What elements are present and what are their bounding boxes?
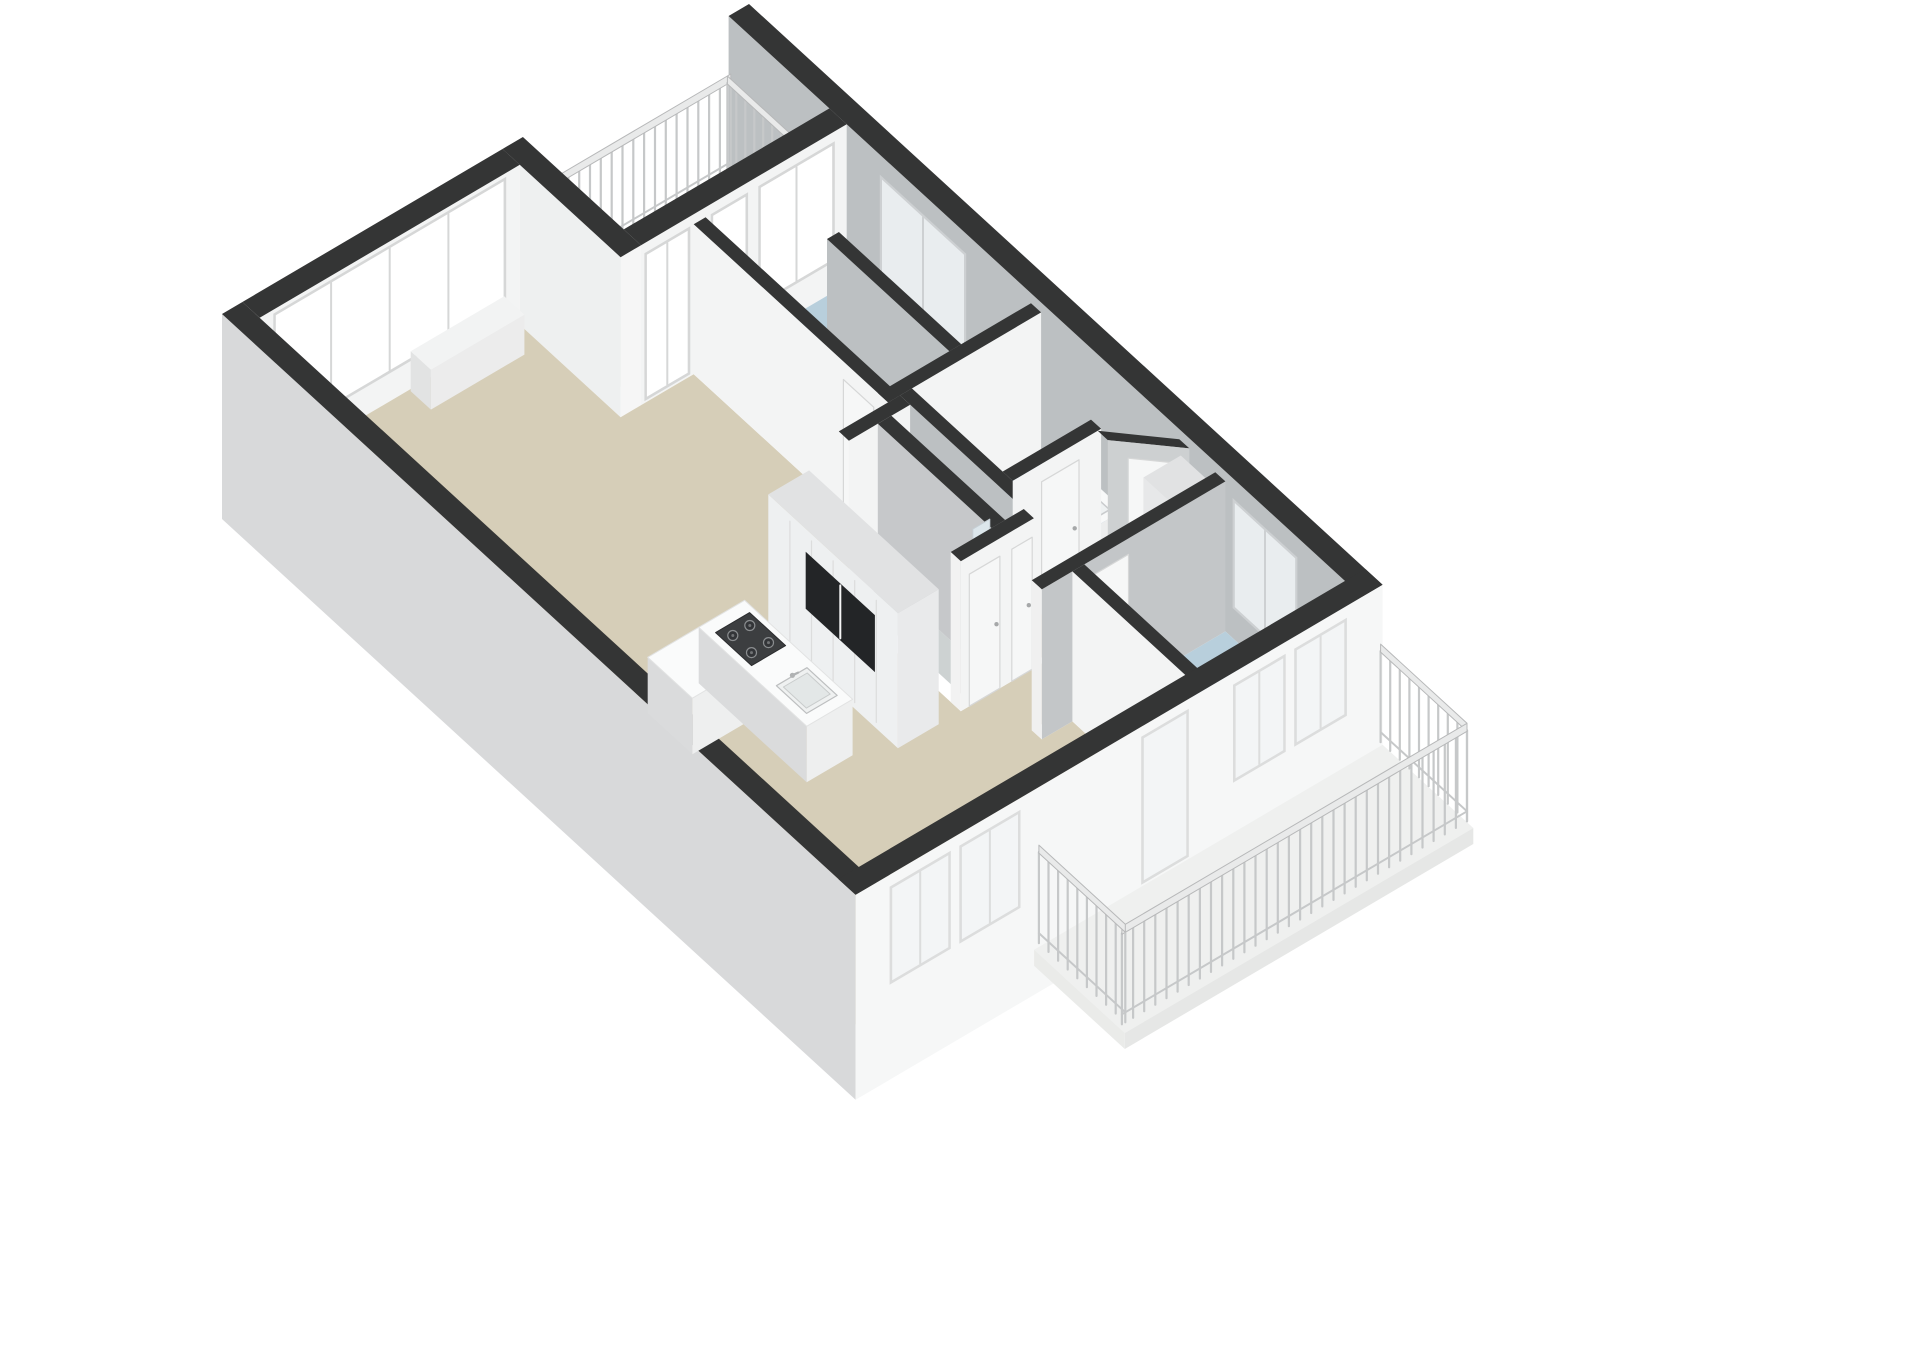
cooktop-burner-center (731, 634, 734, 637)
cooktop-burner-center (767, 641, 770, 644)
kitchen-cabinets-front (898, 589, 939, 748)
cooktop-burner-center (748, 624, 751, 627)
wall-return-end (621, 245, 641, 417)
wc-door-handle (994, 622, 998, 626)
cooktop-burner-center (750, 651, 753, 654)
balcony-se-door-glass (1144, 713, 1187, 880)
floorplan-stage (0, 0, 1920, 1358)
hall-north-wall-end (951, 552, 961, 711)
balcony-se-end-railing-top-rail (1381, 644, 1467, 731)
bathroom-door-handle (1073, 526, 1077, 530)
hall-south-wall-end (1032, 580, 1042, 739)
shower-door-handle (1027, 603, 1031, 607)
shower-door (1012, 537, 1032, 681)
wc-door (969, 556, 1000, 706)
floorplan-3d-view (0, 0, 1920, 1358)
